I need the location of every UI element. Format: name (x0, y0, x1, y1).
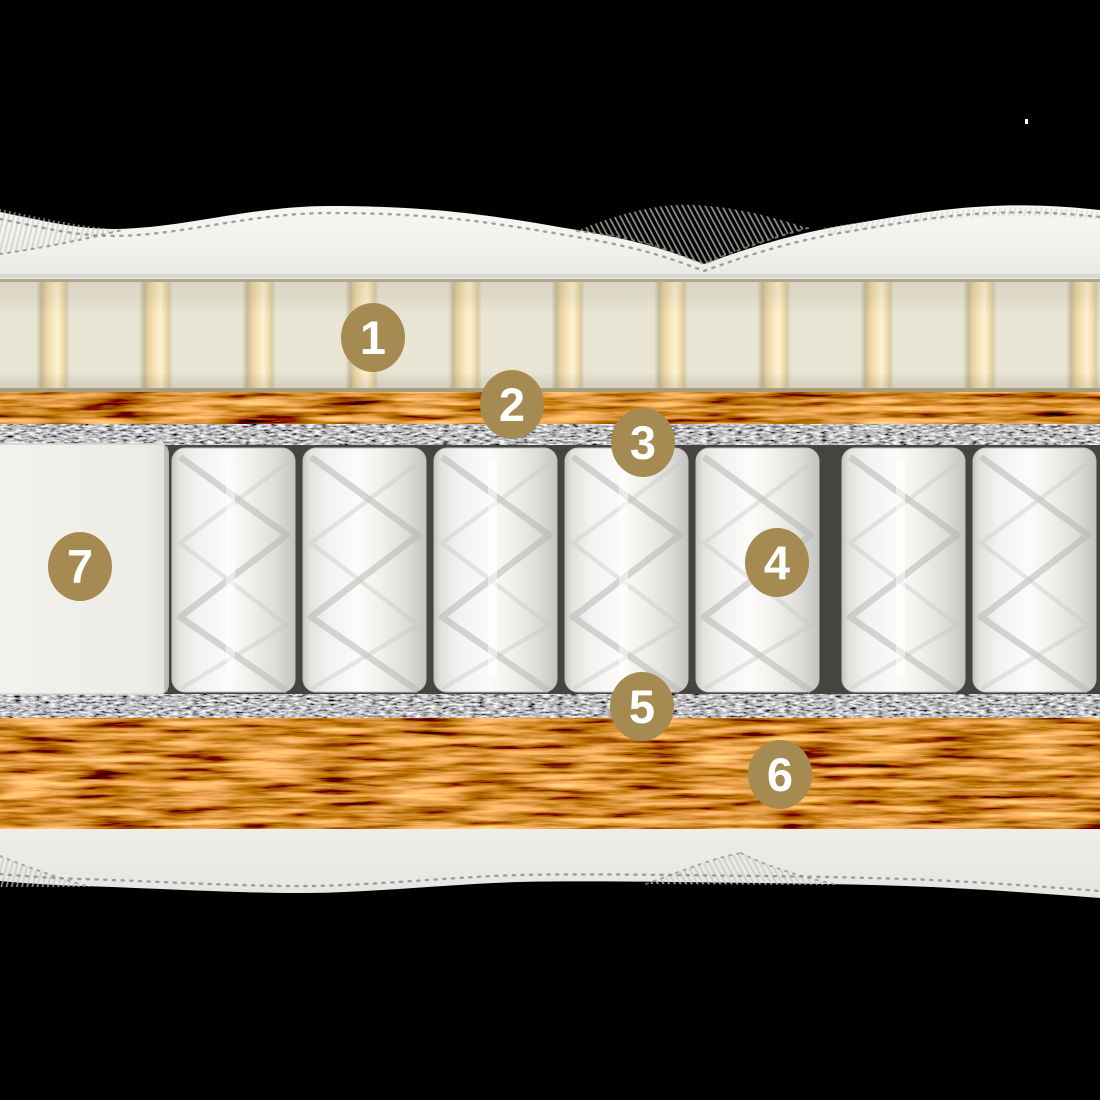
pocket-spring-row (172, 448, 1096, 692)
badge-layer-6: 6 (748, 740, 812, 809)
felt-layer-top (0, 424, 1100, 446)
badge-layer-7: 7 (48, 532, 112, 601)
latex-top-border (0, 279, 1100, 282)
mattress-layers-illustration (0, 0, 1100, 1100)
coir-layer-top (0, 392, 1100, 425)
spring-pocket (565, 448, 688, 692)
badge-layer-1: 1 (341, 303, 405, 372)
badge-layer-4: 4 (745, 528, 809, 597)
badge-layer-3: 3 (611, 408, 675, 477)
coir-layer-bottom (0, 718, 1100, 831)
badge-layer-5: 5 (610, 672, 674, 741)
spring-pocket (172, 448, 295, 692)
spring-pocket (973, 448, 1096, 692)
spring-pocket (842, 448, 965, 692)
latex-bottom-border (0, 388, 1100, 392)
felt-layer-bottom (0, 694, 1100, 719)
spring-pocket (303, 448, 426, 692)
badge-layer-2: 2 (480, 370, 544, 439)
edge-foam-box-shadow (164, 446, 168, 692)
bottom-cover (0, 829, 1100, 898)
mattress-cross-section-diagram: 1 2 3 4 5 6 7 (0, 0, 1100, 1100)
spring-pocket (434, 448, 557, 692)
cover-bottom-shadow (0, 274, 1100, 278)
latex-layer-shading (0, 282, 1100, 388)
screen-artifact-dot (1025, 119, 1028, 124)
